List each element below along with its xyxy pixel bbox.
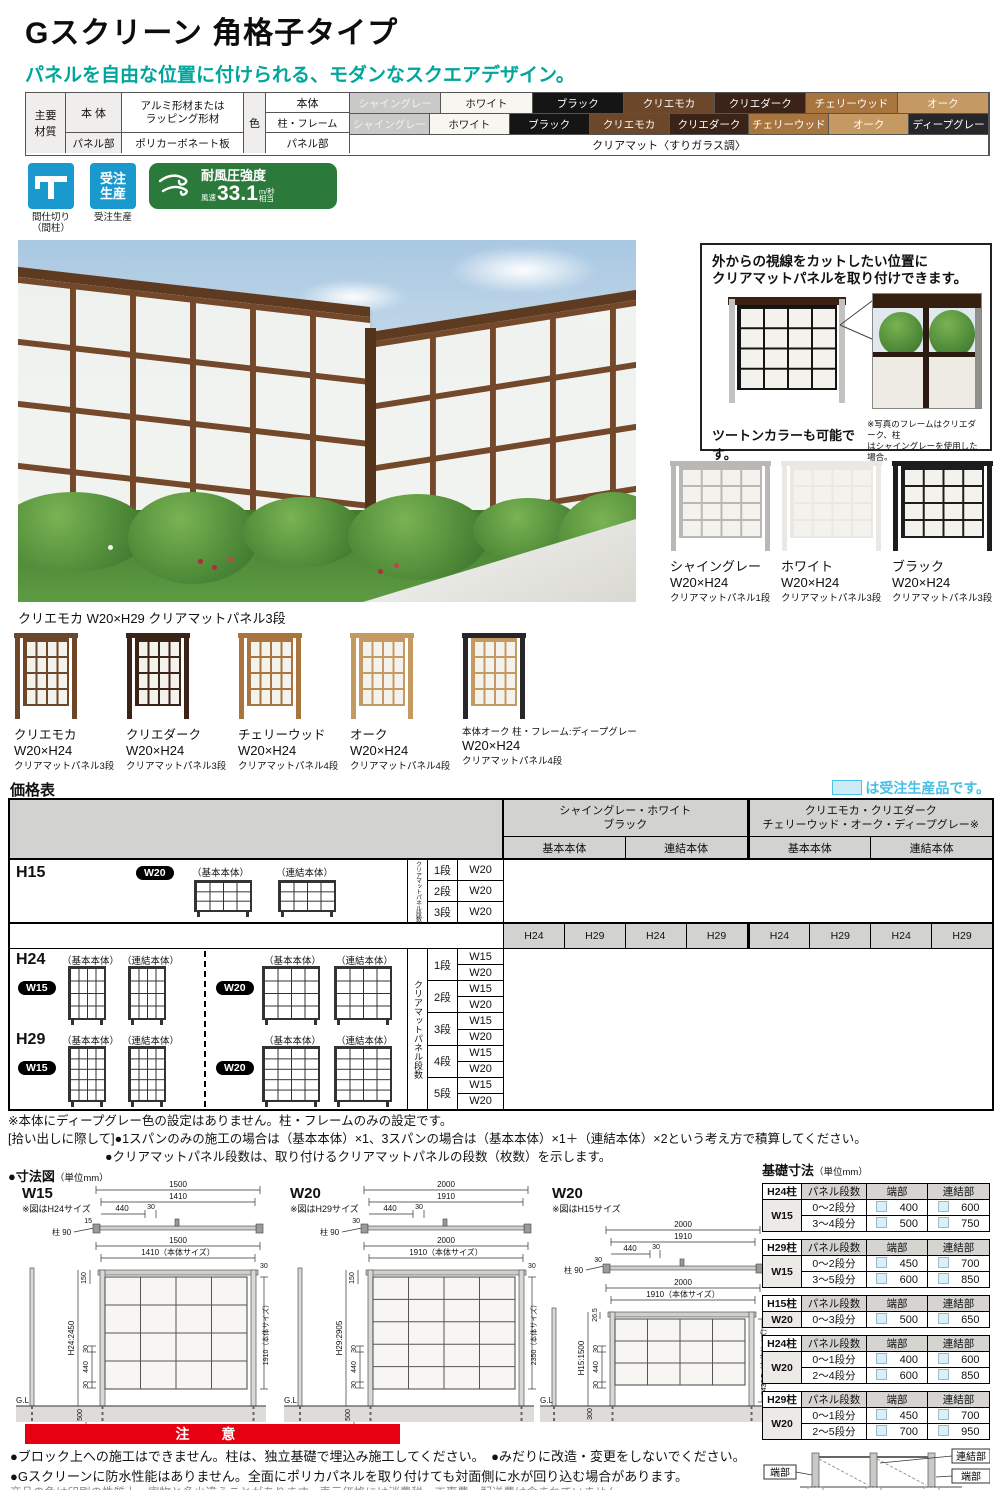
- height-col: H24: [626, 924, 687, 948]
- svg-text:※図はH29サイズ: ※図はH29サイズ: [290, 1203, 359, 1214]
- dim-label: 150: [349, 1272, 356, 1284]
- dim-label: 1910: [674, 1232, 692, 1241]
- dim-label: 2000: [674, 1220, 692, 1229]
- variant-image: [781, 461, 882, 551]
- color-swatch: シャイングレー: [350, 114, 430, 134]
- drawing-title: W15: [22, 1185, 53, 1202]
- dimension-drawing-w20-h29: W20 ※図はH29サイズ 2000 1910 440 30 30 柱 90 2…: [276, 1178, 538, 1428]
- height-col: H29: [687, 924, 748, 948]
- wind-resistance-badge: 耐風圧強度 風速 33.1 m/秒 相当: [149, 163, 337, 209]
- made-to-order-mark: [938, 1425, 949, 1436]
- dashed-divider: [204, 951, 206, 1107]
- h15-drawing-cell: H15 W20 （基本本体） （連結本体）: [10, 860, 408, 922]
- caution-line: ●ブロック上への施工はできません。柱は、独立基礎で埋込み施工してください。 ●み…: [10, 1447, 746, 1467]
- dim-label: 柱 90: [320, 1227, 340, 1237]
- made-to-order-badge: 受注 生産 受注生産: [87, 163, 139, 223]
- dim-label: 柱 90: [564, 1265, 584, 1275]
- dim-label: 1910（本体サイズ）: [409, 1247, 483, 1257]
- dim-label: 30: [593, 1345, 600, 1353]
- diagram-label: 端部: [961, 1470, 981, 1483]
- h15-row: 3段 W20: [428, 902, 503, 922]
- foundation-heading: 基礎寸法（単位mm）: [762, 1160, 992, 1179]
- dim-label: 1500: [169, 1180, 187, 1189]
- height-col: H24: [871, 924, 932, 948]
- variant-image: [670, 461, 771, 551]
- dim-label: H24:2450: [67, 1320, 76, 1355]
- height-col: H24: [748, 924, 811, 948]
- inset-photo: [872, 293, 982, 409]
- dim-label: 440: [351, 1361, 358, 1373]
- made-to-order-mark: [876, 1313, 887, 1324]
- dim-label: 500: [345, 1409, 352, 1421]
- foundation-section: 基礎寸法（単位mm） H24柱 パネル段数 端部 連結部 W15 0〜2段分 4…: [762, 1160, 992, 1490]
- dan-group: 5段 W15W20: [428, 1078, 503, 1109]
- made-to-order-mark: [938, 1201, 949, 1212]
- color-swatch: ブラック: [533, 93, 624, 113]
- color-row-frame-label: 柱・フレーム: [266, 113, 350, 133]
- svg-text:※図はH15サイズ: ※図はH15サイズ: [552, 1203, 621, 1214]
- dim-label: 440: [623, 1244, 637, 1253]
- h15-label: H15: [16, 864, 45, 882]
- dim-label: 1410: [169, 1192, 187, 1201]
- diagram-label: 端部: [770, 1466, 790, 1479]
- height-col: H24: [504, 924, 565, 948]
- frame-color-swatches: シャイングレー ホワイト ブラック クリエモカ クリエダーク チェリーウッド オ…: [350, 114, 989, 135]
- foundation-table: H15柱 パネル段数 端部 連結部 W20 0〜3段分 500 650: [762, 1295, 990, 1328]
- variant-image: [462, 633, 526, 719]
- drawing-title: W20: [552, 1185, 583, 1202]
- variant-image: [238, 633, 302, 719]
- subcol-header: 基本本体: [504, 836, 626, 858]
- made-to-order-mark: [876, 1409, 887, 1420]
- variant-card: クリエモカ W20×H24 クリアマットパネル3段: [14, 633, 100, 772]
- color-swatch: オーク: [829, 114, 909, 134]
- made-to-order-mark: [876, 1369, 887, 1380]
- dim-label: 30: [652, 1244, 660, 1251]
- w15-badge: W15: [18, 981, 56, 995]
- spec-material-header: 主要 材質: [26, 93, 66, 153]
- dim-label: G.L: [16, 1396, 29, 1405]
- dimension-drawing-w15: W15 ※図はH24サイズ 1500 1410 440 30 15 柱 90 1…: [8, 1178, 270, 1428]
- mini-lattice: [194, 880, 252, 912]
- made-to-order-mark: [938, 1409, 949, 1420]
- panel-color-value: クリアマット〈すりガラス調〉: [350, 135, 989, 155]
- dim-label: 1410（本体サイズ）: [141, 1247, 215, 1257]
- spec-body-label: 本 体: [66, 93, 122, 133]
- color-swatch: クリエダーク: [715, 93, 806, 113]
- subcol-header: 連結本体: [871, 836, 992, 858]
- dim-label: 440: [115, 1204, 129, 1213]
- red-flowers: [198, 559, 203, 564]
- variant-card: 本体オーク 柱・フレーム:ディープグレー W20×H24 クリアマットパネル4段: [462, 633, 612, 772]
- dan-group: 1段 W15W20: [428, 949, 503, 981]
- made-to-order-mark: [938, 1257, 949, 1268]
- photo-caption: クリエモカ W20×H29 クリアマットパネル3段: [18, 608, 286, 627]
- variant-card: クリエダーク W20×H24 クリアマットパネル3段: [126, 633, 212, 772]
- dim-label: 2000: [437, 1236, 455, 1245]
- price-header-blank: [10, 800, 504, 858]
- subcol-header: 連結本体: [626, 836, 748, 858]
- spec-body-value: アルミ形材または ラッピング形材: [122, 93, 244, 133]
- color-row-body-label: 本体: [266, 93, 350, 113]
- dan-group: 4段 W15W20: [428, 1046, 503, 1078]
- made-to-order-icon: 受注 生産: [90, 163, 136, 209]
- color-group-2: クリエモカ・クリエダーク チェリーウッド・オーク・ディープグレー※: [748, 800, 993, 836]
- dan-group: 2段 W15W20: [428, 981, 503, 1013]
- dim-label: 30: [593, 1381, 600, 1389]
- variant-card: シャイングレー W20×H24 クリアマットパネル1段: [670, 461, 771, 604]
- white-flowers: [108, 545, 113, 550]
- info-illustration: [712, 287, 980, 415]
- spec-color-header: 色: [244, 93, 266, 153]
- variant-image: [126, 633, 190, 719]
- dim-label: 柱 90: [52, 1227, 72, 1237]
- mini-lattice: [128, 966, 166, 1020]
- color-swatch: シャイングレー: [350, 93, 441, 113]
- partition-caption: 間仕切り （間柱）: [25, 212, 77, 234]
- mini-lattice: [68, 966, 106, 1020]
- color-swatch: クリエモカ: [624, 93, 715, 113]
- variant-card: オーク W20×H24 クリアマットパネル4段: [350, 633, 436, 772]
- w20-badge: W20: [136, 866, 174, 880]
- color-swatch: クリエモカ: [590, 114, 670, 134]
- height-col: H29: [810, 924, 871, 948]
- made-to-order-mark: [876, 1425, 887, 1436]
- dim-label: 500: [77, 1409, 84, 1421]
- partition-badge: 間仕切り （間柱）: [25, 163, 77, 234]
- h24-h29-drawing-cell: H24 W15 （基本本体） （連結本体） W20 （基本本体） （連結本体） …: [10, 949, 408, 1109]
- color-swatch: クリエダーク: [670, 114, 750, 134]
- page-title: Gスクリーン 角格子タイプ: [25, 8, 398, 52]
- legend-swatch: [832, 780, 862, 795]
- dim-label: G.L: [284, 1396, 297, 1405]
- dim-label: 30: [83, 1345, 90, 1353]
- color-swatch: ホワイト: [441, 93, 532, 113]
- info-heading: 外からの視線をカットしたい位置に クリアマットパネルを取り付けできます。: [712, 253, 980, 287]
- made-to-order-caption: 受注生産: [87, 212, 139, 223]
- table-notes: ※本体にディープグレー色の設定はありません。柱・フレームのみの設定です。 [拾い…: [8, 1112, 867, 1166]
- color-swatch: ディープグレー: [909, 114, 989, 134]
- color-row-panel-label: パネル部: [266, 133, 350, 153]
- body-color-swatches: シャイングレー ホワイト ブラック クリエモカ クリエダーク チェリーウッド オ…: [350, 93, 989, 114]
- color-swatch: チェリーウッド: [749, 114, 829, 134]
- h15-row: 1段 W20: [428, 860, 503, 881]
- w20-badge: W20: [216, 1061, 254, 1075]
- spec-table: 主要 材質 本 体 パネル部 アルミ形材または ラッピング形材 ポリカーボネート…: [25, 92, 990, 156]
- dim-label: 300: [587, 1408, 594, 1420]
- two-tone-note: ツートンカラーも可能です。: [712, 425, 867, 463]
- dim-label: 440: [593, 1361, 600, 1373]
- dim-label: 30: [528, 1263, 536, 1270]
- made-to-order-mark: [876, 1257, 887, 1268]
- price-table: シャイングレー・ホワイト ブラック クリエモカ・クリエダーク チェリーウッド・オ…: [8, 798, 994, 1111]
- dim-label: 30: [83, 1381, 90, 1389]
- color-swatch: ホワイト: [430, 114, 510, 134]
- dim-label: 2000: [674, 1278, 692, 1287]
- made-to-order-mark: [938, 1313, 949, 1324]
- color-group-1: シャイングレー・ホワイト ブラック: [504, 800, 748, 836]
- made-to-order-mark: [876, 1273, 887, 1284]
- photo-note: ※写真のフレームはクリエダーク、柱 はシャイングレーを使用した場合。: [867, 419, 980, 463]
- note-line: [拾い出しに際して]●1スパンのみの施工の場合は（基本本体）×1、3スパンの場合…: [8, 1130, 867, 1148]
- color-swatch: オーク: [898, 93, 989, 113]
- svg-text:※図はH24サイズ: ※図はH24サイズ: [22, 1203, 91, 1214]
- wind-title: 耐風圧強度: [201, 169, 275, 183]
- wind-value: 33.1: [217, 183, 258, 204]
- dim-label: 30: [147, 1204, 155, 1211]
- made-to-order-mark: [938, 1353, 949, 1364]
- h29-label: H29: [16, 1031, 45, 1049]
- mini-lattice: [128, 1046, 166, 1102]
- h15-row: 2段 W20: [428, 881, 503, 902]
- subcol-header: 基本本体: [748, 836, 872, 858]
- dim-label: 440: [83, 1361, 90, 1373]
- dim-label: H29:2905: [335, 1320, 344, 1355]
- variant-image: [892, 461, 993, 551]
- dim-label: 26.5: [592, 1308, 599, 1322]
- dim-label: 15: [84, 1218, 92, 1225]
- subheader-blank: [10, 924, 504, 948]
- dim-label: 30: [352, 1218, 360, 1225]
- mini-lattice: [262, 966, 320, 1020]
- drawing-title: W20: [290, 1185, 321, 1202]
- wind-icon: [157, 170, 195, 202]
- panel-count-vertical-label: クリアマットパネル段数: [408, 860, 428, 922]
- color-variants-right: シャイングレー W20×H24 クリアマットパネル1段 ホワイト W20×H24…: [670, 461, 993, 604]
- color-variants-bottom: クリエモカ W20×H24 クリアマットパネル3段 クリエダーク W20×H24…: [14, 633, 612, 772]
- dim-label: 440: [383, 1204, 397, 1213]
- dim-label: 30: [351, 1381, 358, 1389]
- page-subtitle: パネルを自由な位置に付けられる、モダンなスクエアデザイン。: [25, 60, 575, 87]
- note-line: ●クリアマットパネル段数は、取り付けるクリアマットパネルの段数（枚数）を示します…: [8, 1148, 867, 1166]
- spec-panel-value: ポリカーボネート板: [122, 133, 244, 153]
- h24-h29-price-area: [504, 949, 992, 1109]
- caution-lines: ●ブロック上への施工はできません。柱は、独立基礎で埋込み施工してください。 ●み…: [10, 1447, 746, 1487]
- made-to-order-mark: [938, 1369, 949, 1380]
- spec-panel-label: パネル部: [66, 133, 122, 153]
- w20-badge: W20: [216, 981, 254, 995]
- variant-card: ホワイト W20×H24 クリアマットパネル3段: [781, 461, 882, 604]
- h24-label: H24: [16, 951, 45, 969]
- dim-label: 1910（本体サイズ）: [646, 1289, 720, 1299]
- dim-label: 30: [594, 1257, 602, 1264]
- foundation-table: H24柱 パネル段数 端部 連結部 W20 0〜1段分 400 600 2〜4段…: [762, 1335, 990, 1384]
- note-line: ※本体にディープグレー色の設定はありません。柱・フレームのみの設定です。: [8, 1112, 867, 1130]
- color-swatch: ブラック: [510, 114, 590, 134]
- dan-group: 3段 W15W20: [428, 1013, 503, 1045]
- mini-lattice: [278, 880, 336, 912]
- foundation-diagram: 端部 連結部 端部: [762, 1447, 990, 1490]
- made-to-order-legend: は受注生産品です。: [832, 778, 990, 798]
- foundation-table: H24柱 パネル段数 端部 連結部 W15 0〜2段分 400 600 3〜4段…: [762, 1183, 990, 1232]
- color-swatch: チェリーウッド: [806, 93, 897, 113]
- dim-label: H15:1500: [577, 1340, 586, 1375]
- foundation-table: H29柱 パネル段数 端部 連結部 W15 0〜2段分 450 700 3〜5段…: [762, 1239, 990, 1288]
- partition-icon: [28, 163, 74, 209]
- made-to-order-mark: [876, 1201, 887, 1212]
- variant-card: チェリーウッド W20×H24 クリアマットパネル4段: [238, 633, 324, 772]
- height-col: H29: [932, 924, 992, 948]
- dim-label: G.L: [540, 1396, 553, 1405]
- dimension-drawing-w20-h15: W20 ※図はH15サイズ 2000 1910 440 30 30 柱 90 2…: [538, 1178, 768, 1428]
- dim-label: 30: [415, 1204, 423, 1211]
- variant-image: [14, 633, 78, 719]
- price-table-title: 価格表: [10, 779, 55, 800]
- dim-label: 30: [351, 1345, 358, 1353]
- variant-image: [350, 633, 414, 719]
- footer-note: 商品の色は印刷の性質上、実物と多少違うことがあります。表示価格には消費税、工事費…: [10, 1484, 629, 1490]
- made-to-order-mark: [876, 1353, 887, 1364]
- panel-count-vertical-label: クリアマットパネル段数: [408, 949, 428, 1109]
- diagram-label: 連結部: [956, 1450, 986, 1463]
- h15-price-area: [504, 860, 992, 922]
- w15-badge: W15: [18, 1061, 56, 1075]
- variant-card: ブラック W20×H24 クリアマットパネル3段: [892, 461, 993, 604]
- made-to-order-mark: [938, 1273, 949, 1284]
- main-product-photo: [18, 240, 636, 602]
- dim-label: 2000: [437, 1180, 455, 1189]
- dim-label: 30: [260, 1263, 268, 1270]
- foundation-table: H29柱 パネル段数 端部 連結部 W20 0〜1段分 450 700 2〜5段…: [762, 1391, 990, 1440]
- feature-badges: 間仕切り （間柱） 受注 生産 受注生産 耐風圧強度 風速 33.1: [25, 163, 337, 234]
- dim-label: 1500: [169, 1236, 187, 1245]
- mini-lattice: [334, 966, 392, 1020]
- dim-label: 150: [81, 1272, 88, 1284]
- mini-lattice: [68, 1046, 106, 1102]
- made-to-order-mark: [876, 1217, 887, 1228]
- dim-label: 1910: [437, 1192, 455, 1201]
- height-col: H29: [565, 924, 626, 948]
- made-to-order-mark: [938, 1217, 949, 1228]
- mini-lattice: [334, 1046, 392, 1102]
- info-box: 外からの視線をカットしたい位置に クリアマットパネルを取り付けできます。: [700, 243, 992, 451]
- mini-lattice: [262, 1046, 320, 1102]
- dim-label: 1910（本体サイズ）: [261, 1301, 270, 1365]
- caution-banner: 注 意: [25, 1424, 400, 1444]
- dim-label: 2350（本体サイズ）: [529, 1301, 538, 1365]
- catalog-page: Gスクリーン 角格子タイプ パネルを自由な位置に付けられる、モダンなスクエアデザ…: [0, 0, 1000, 1490]
